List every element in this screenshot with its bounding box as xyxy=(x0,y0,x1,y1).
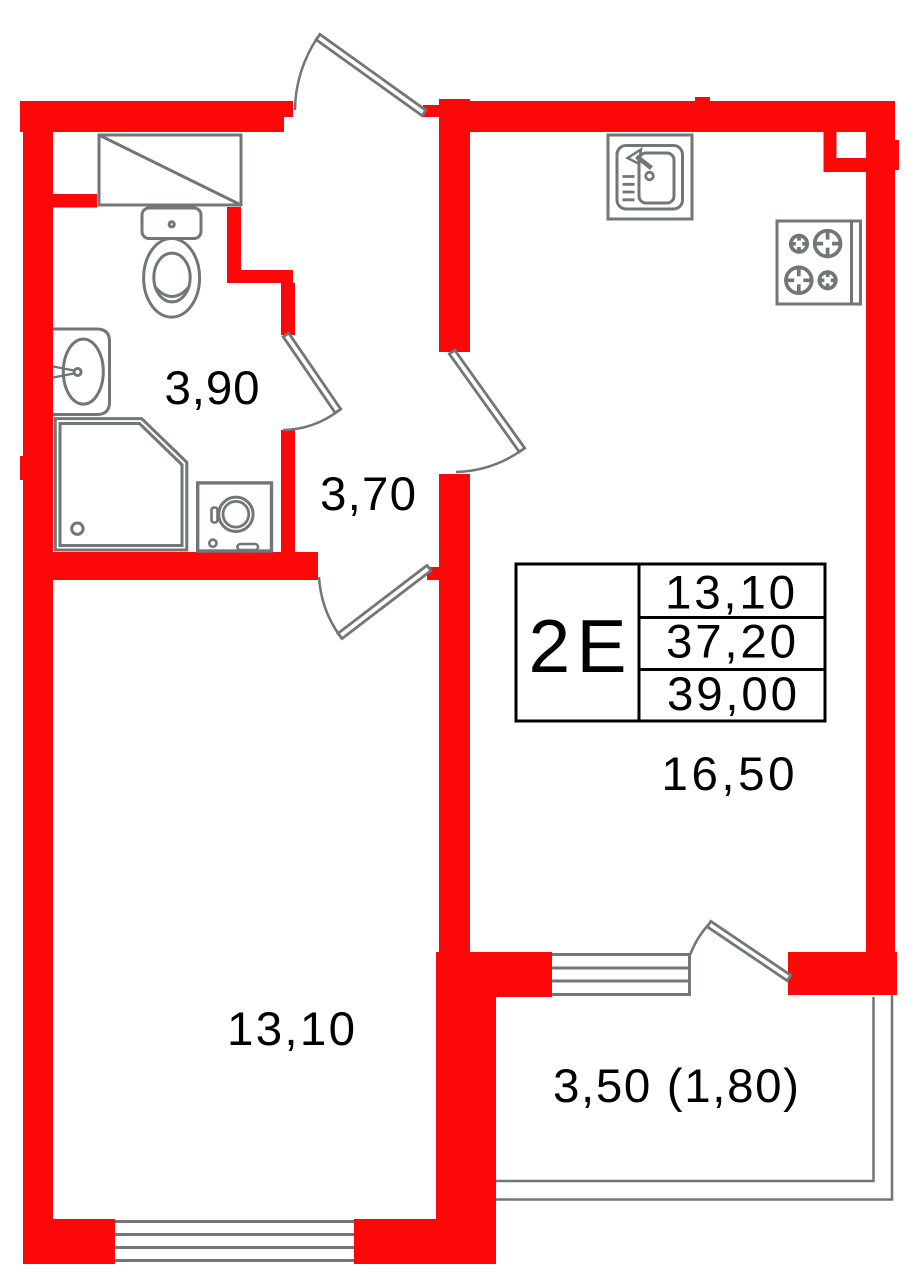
svg-text:16,50: 16,50 xyxy=(662,748,795,801)
svg-text:37,20: 37,20 xyxy=(666,616,796,669)
svg-text:39,00: 39,00 xyxy=(667,668,797,721)
svg-text:3,70: 3,70 xyxy=(320,468,416,521)
svg-text:2E: 2E xyxy=(529,604,627,688)
svg-text:3,90: 3,90 xyxy=(165,362,260,415)
svg-text:13,10: 13,10 xyxy=(227,1003,355,1056)
svg-text:3,50 (1,80): 3,50 (1,80) xyxy=(553,1060,799,1113)
svg-text:13,10: 13,10 xyxy=(665,567,795,620)
